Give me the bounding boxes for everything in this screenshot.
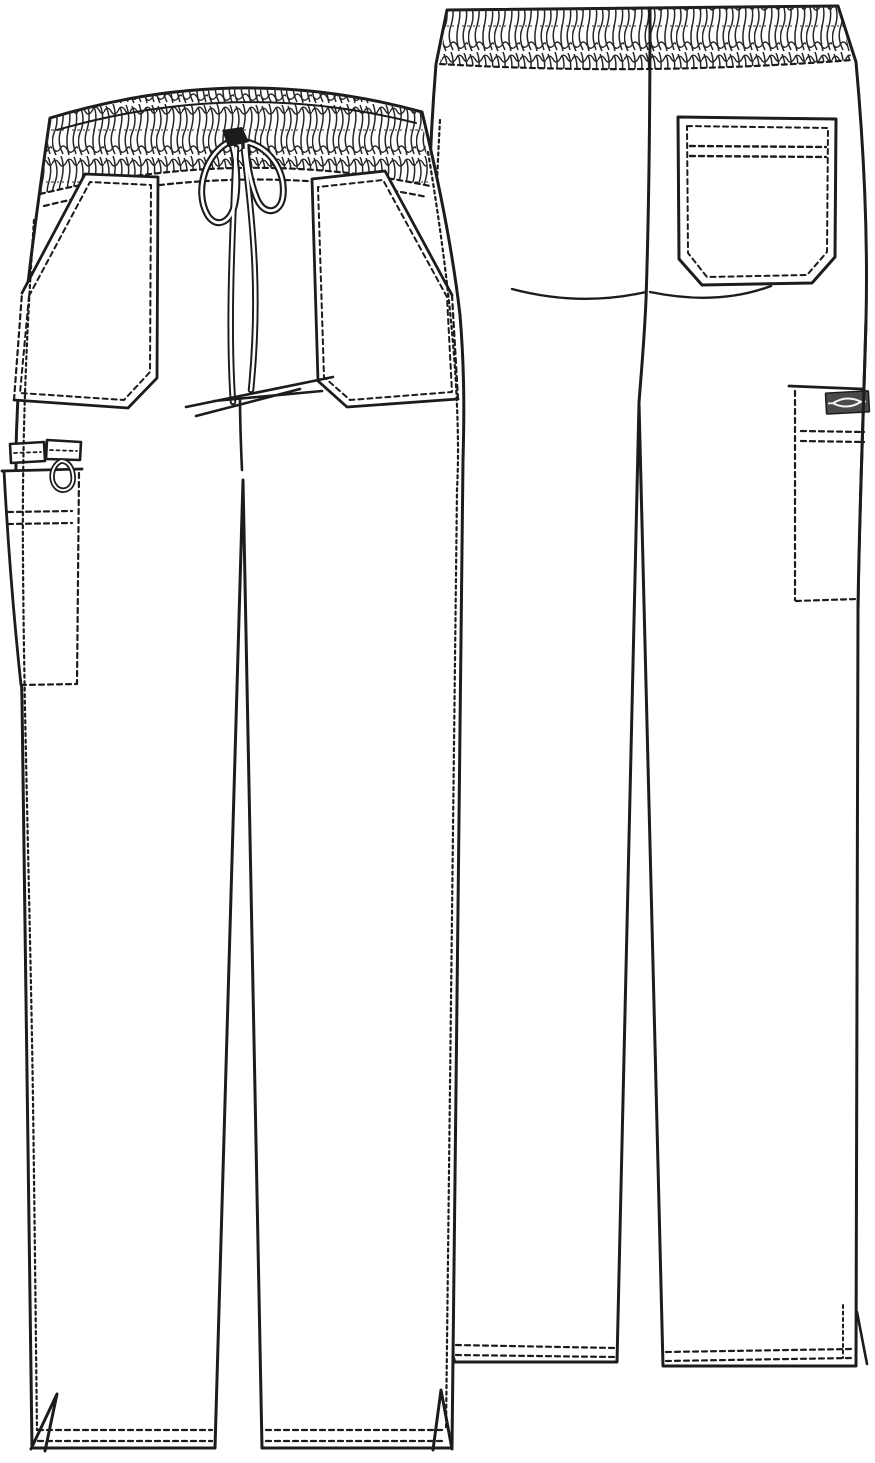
back-waistband-texture	[440, 6, 852, 69]
front-view	[2, 88, 464, 1451]
front-left-pocket	[14, 174, 158, 408]
front-left-pocket-fill	[14, 174, 158, 408]
back-right-vent	[857, 1312, 867, 1364]
front-cargo-pocket	[2, 440, 82, 686]
scrub-pants-flat-sketch	[0, 0, 875, 1463]
back-cargo-fill	[789, 386, 861, 603]
back-view	[428, 6, 870, 1366]
cargo-pocket-fill	[4, 468, 81, 686]
back-patch-pocket	[678, 117, 836, 285]
back-pocket-outline	[678, 117, 836, 285]
flat-sketch-svg	[0, 0, 875, 1463]
